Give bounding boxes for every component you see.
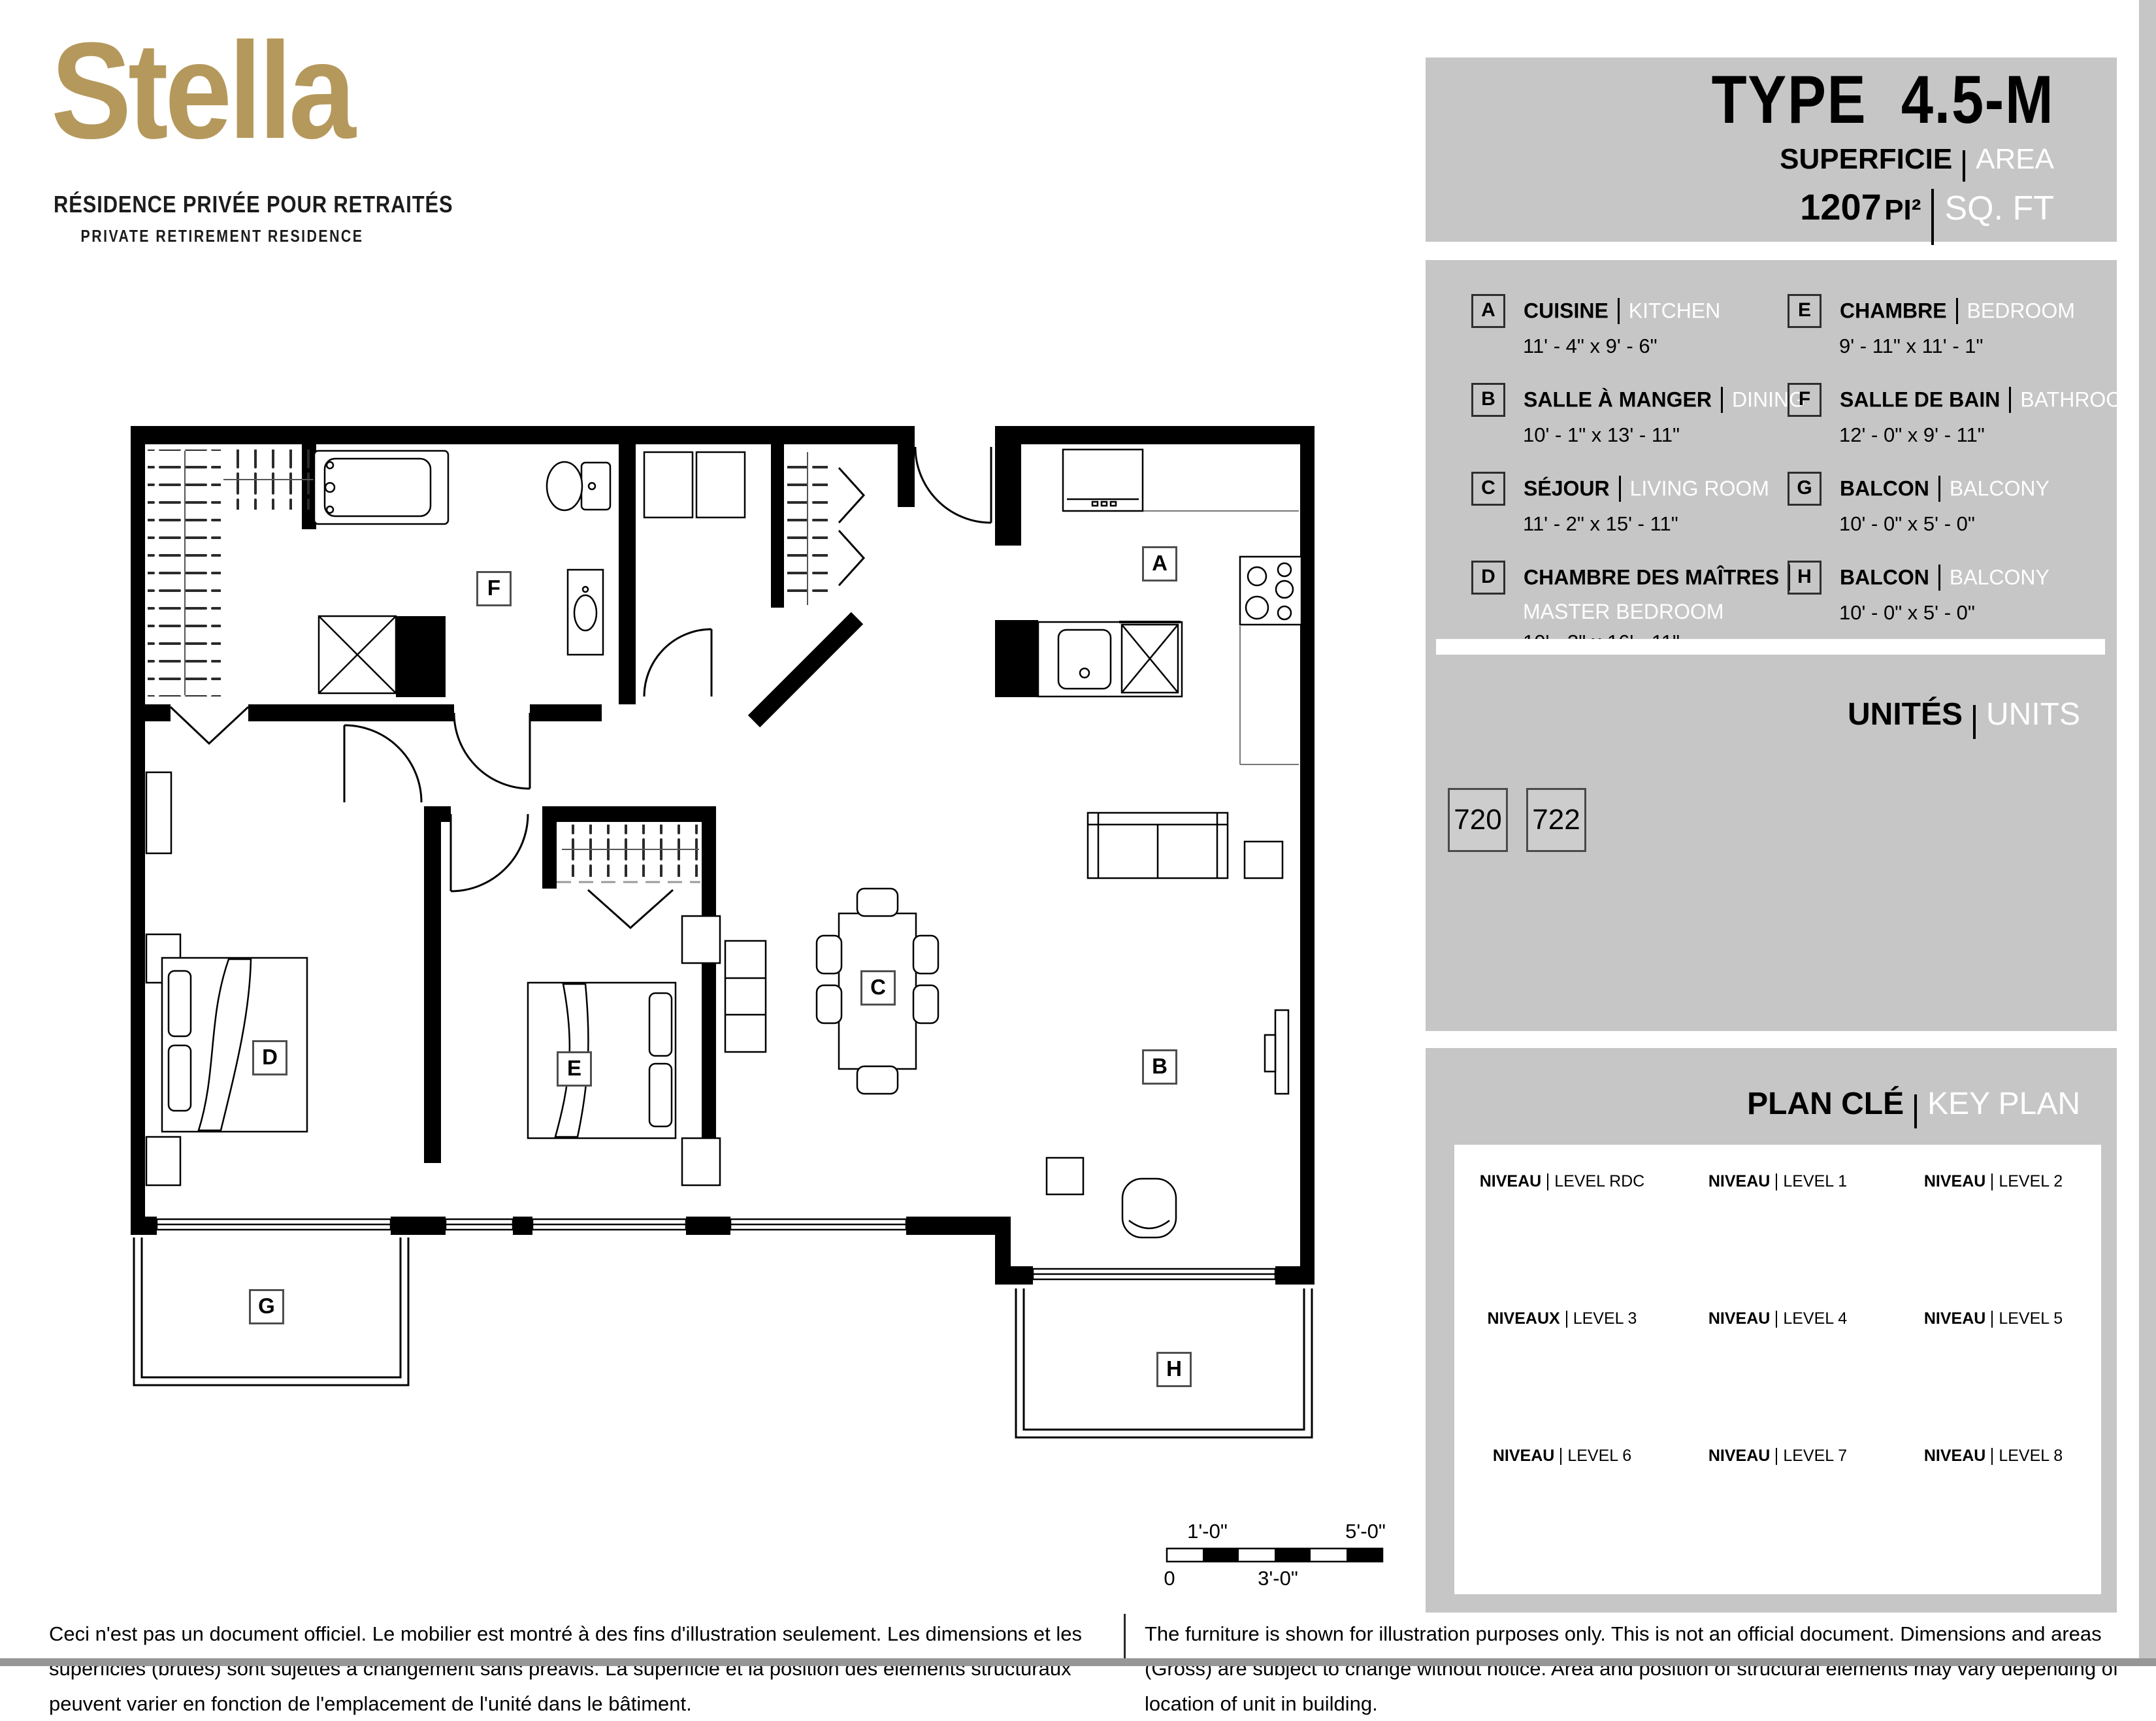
- chair-icon: [817, 985, 841, 1023]
- logo-tagline-fr: RÉSIDENCE PRIVÉE POUR RETRAITÉS: [54, 191, 391, 218]
- unit-number-720: 720: [1448, 788, 1508, 852]
- legend-row-H: HBALCONBALCONY10' - 0" x 5' - 0": [1788, 561, 2050, 625]
- room-label-B: B: [1142, 1049, 1177, 1085]
- legend-name-en: BALCONY: [1950, 566, 2050, 589]
- legend-name-fr: SALLE DE BAIN: [1840, 388, 2000, 412]
- keyplan-level-label-level-5: NIVEAULEVEL 5: [1886, 1309, 2101, 1328]
- angled-wall: [754, 618, 857, 721]
- room-label-H: H: [1156, 1352, 1192, 1387]
- chair-icon: [857, 889, 898, 916]
- legend-name-fr: CUISINE: [1524, 299, 1609, 323]
- scale-3ft: 3'-0": [1258, 1567, 1298, 1590]
- room-label-G: G: [249, 1289, 284, 1324]
- nightstand-icon: [682, 916, 720, 963]
- legend-panel: ACUISINEKITCHEN11' - 4" x 9' - 6"BSALLE …: [1426, 260, 2117, 1031]
- legend-divider: [1436, 639, 2105, 655]
- bedroom-e-furniture: [528, 916, 720, 1185]
- chair-icon: [913, 936, 938, 974]
- side-table-icon: [1245, 842, 1282, 878]
- keyplan-level-label-level-1: NIVEAULEVEL 1: [1670, 1172, 1886, 1191]
- room-label-A: A: [1142, 546, 1177, 582]
- keyplan-level-label-level-rdc: NIVEAULEVEL RDC: [1454, 1172, 1670, 1191]
- legend-name-en: BEDROOM: [1967, 299, 2075, 323]
- legend-row-G: GBALCONBALCONY10' - 0" x 5' - 0": [1788, 472, 2050, 536]
- keyplan-panel: PLAN CLÉKEY PLAN: [1426, 1048, 2117, 1613]
- header-panel: TYPE 4.5-M SUPERFICIEAREA 1207 PI²SQ. FT: [1426, 57, 2117, 242]
- legend-dimensions: 10' - 1" x 13' - 11": [1523, 423, 1805, 447]
- scale-0: 0: [1164, 1567, 1175, 1590]
- legend-name-fr: CHAMBRE DES MAÎTRES: [1524, 566, 1779, 589]
- keyplan-level-label-level-8: NIVEAULEVEL 8: [1886, 1447, 2101, 1466]
- legend-dimensions: 9' - 11" x 11' - 1": [1839, 335, 2075, 358]
- scale-bar: [1167, 1549, 1382, 1562]
- legend-dimensions: 12' - 0" x 9' - 11": [1839, 423, 2140, 447]
- room-label-D: D: [252, 1040, 287, 1075]
- legend-dimensions: 10' - 0" x 5' - 0": [1839, 512, 2050, 536]
- legend-name-fr: SÉJOUR: [1524, 477, 1610, 500]
- legend-letter: A: [1471, 294, 1505, 328]
- room-label-C: C: [860, 970, 896, 1006]
- storage-cabinets: [644, 452, 745, 517]
- page-edge-bottom: [0, 1658, 2156, 1666]
- legend-name-en: BALCONY: [1950, 477, 2050, 500]
- keyplan-level-label-level-6: NIVEAULEVEL 6: [1454, 1447, 1670, 1466]
- nightstand-icon: [682, 1138, 720, 1185]
- legend-dimensions: 11' - 4" x 9' - 6": [1523, 335, 1720, 358]
- keyplan-level-label-level-3: NIVEAUXLEVEL 3: [1454, 1309, 1670, 1328]
- balconies: [134, 1237, 1312, 1437]
- chair-icon: [817, 936, 841, 974]
- bathroom-fixtures: [314, 451, 610, 693]
- unit-number-boxes: 720722: [1448, 788, 1605, 852]
- chair-icon: [913, 985, 938, 1023]
- tv-icon: [1275, 1010, 1288, 1094]
- area-label-line: SUPERFICIEAREA: [1651, 143, 2054, 182]
- disclaimer-divider: [1124, 1614, 1126, 1662]
- scale-1ft: 1'-0": [1187, 1520, 1228, 1543]
- page: N Stella RÉSIDENCE PRIVÉE POUR RETRAITÉS…: [0, 0, 2156, 1666]
- sink-icon: [1058, 630, 1111, 689]
- scale-5ft: 5'-0": [1345, 1520, 1386, 1543]
- legend-dimensions: 11' - 2" x 15' - 11": [1523, 512, 1769, 536]
- logo-tagline-en: PRIVATE RETIREMENT RESIDENCE: [61, 226, 383, 246]
- legend-name-en: MASTER BEDROOM: [1523, 600, 1799, 624]
- area-value-line: 1207 PI²SQ. FT: [1651, 186, 2054, 245]
- bedroom-d-furniture: [146, 772, 307, 1185]
- legend-row-A: ACUISINEKITCHEN11' - 4" x 9' - 6": [1471, 294, 1720, 358]
- room-label-E: E: [557, 1051, 592, 1087]
- legend-letter: B: [1471, 383, 1505, 417]
- chair-icon: [857, 1066, 898, 1094]
- keyplan-level-label-level-7: NIVEAULEVEL 7: [1670, 1447, 1886, 1466]
- legend-row-B: BSALLE À MANGERDINING10' - 1" x 13' - 11…: [1471, 383, 1805, 447]
- dresser-icon: [146, 772, 171, 853]
- legend-row-F: FSALLE DE BAINBATHROOM12' - 0" x 9' - 11…: [1788, 383, 2140, 447]
- keyplan-canvas: [1454, 1145, 2101, 1594]
- unit-type-title: TYPE 4.5-M: [1711, 61, 2054, 139]
- legend-name-fr: BALCON: [1840, 477, 1929, 500]
- legend-letter: G: [1788, 472, 1821, 506]
- unit-number-722: 722: [1526, 788, 1586, 852]
- living-dining-furniture: [725, 813, 1288, 1237]
- keyplan-heading: PLAN CLÉKEY PLAN: [1747, 1086, 2080, 1128]
- side-table-icon: [1047, 1158, 1083, 1194]
- shelf-icon: [725, 941, 766, 1052]
- legend-name-fr: CHAMBRE: [1840, 299, 1947, 323]
- keyplan-level-label-level-4: NIVEAULEVEL 4: [1670, 1309, 1886, 1328]
- legend-dimensions: 10' - 0" x 5' - 0": [1839, 601, 2050, 625]
- legend-letter: D: [1471, 561, 1505, 595]
- keyplan-level-label-level-2: NIVEAULEVEL 2: [1886, 1172, 2101, 1191]
- legend-letter: H: [1788, 561, 1821, 595]
- disclaimer-fr: Ceci n'est pas un document officiel. Le …: [49, 1616, 1101, 1721]
- room-label-F: F: [476, 571, 512, 606]
- units-heading: UNITÉSUNITS: [1848, 697, 2080, 739]
- page-edge-right: [2139, 0, 2156, 1666]
- legend-name-fr: SALLE À MANGER: [1524, 388, 1712, 412]
- legend-row-E: ECHAMBREBEDROOM9' - 11" x 11' - 1": [1788, 294, 2075, 358]
- legend-letter: F: [1788, 383, 1821, 417]
- disclaimer-en: The furniture is shown for illustration …: [1145, 1616, 2125, 1721]
- kitchen-fixtures: [1038, 450, 1301, 764]
- legend-name-fr: BALCON: [1840, 566, 1929, 589]
- legend-row-C: CSÉJOURLIVING ROOM11' - 2" x 15' - 11": [1471, 472, 1769, 536]
- nightstand-icon: [146, 1137, 180, 1185]
- legend-name-en: LIVING ROOM: [1630, 477, 1769, 500]
- logo: Stella: [51, 12, 352, 170]
- legend-name-en: BATHROOM: [2020, 388, 2140, 412]
- legend-name-en: KITCHEN: [1629, 299, 1720, 323]
- legend-letter: C: [1471, 472, 1505, 506]
- legend-letter: E: [1788, 294, 1821, 328]
